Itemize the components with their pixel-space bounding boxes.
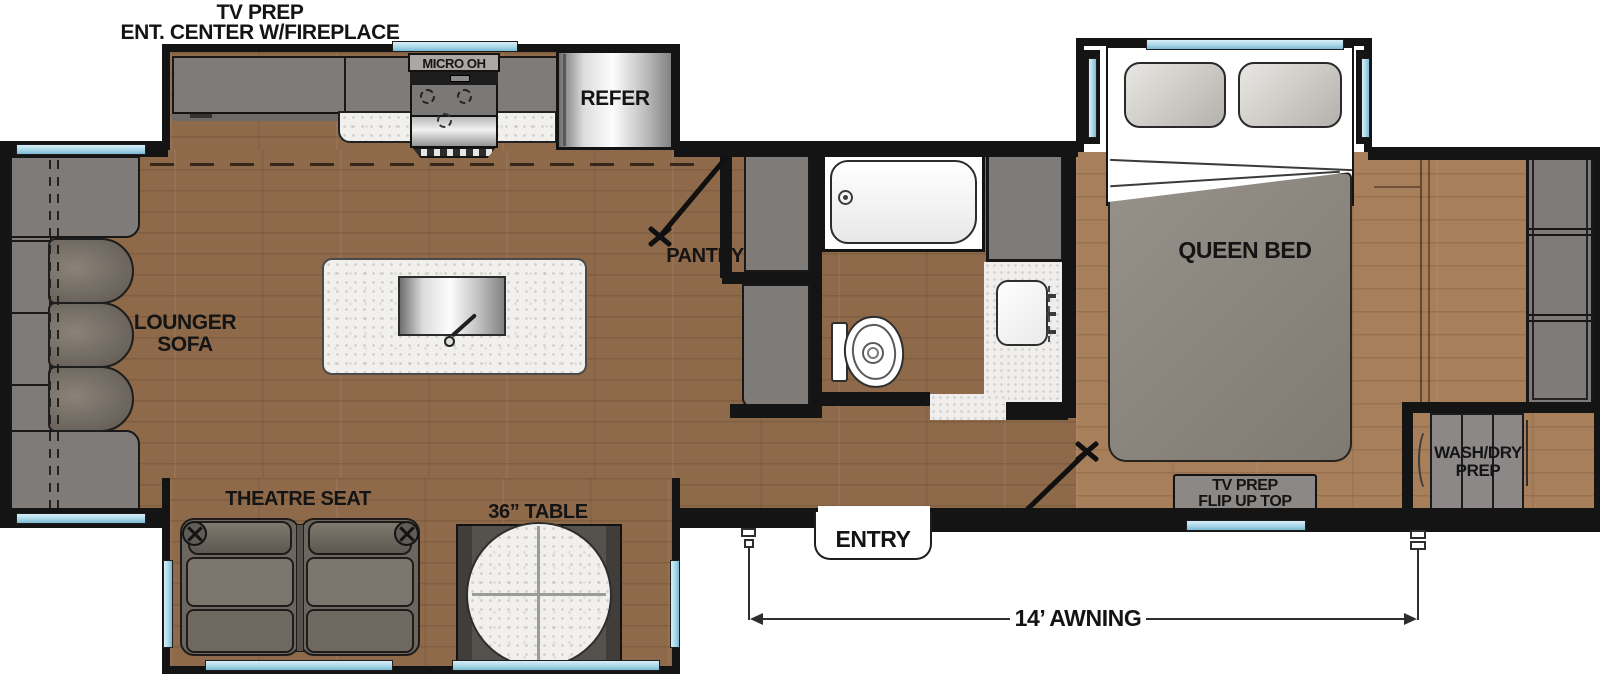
bath-door-threshold-tile (930, 394, 1008, 420)
linen-cabinet (986, 152, 1064, 262)
living-slide-window-bottom-left (205, 660, 393, 671)
living-slide-window-bottom-right (452, 660, 660, 671)
entertainment-center-cabinet (172, 56, 558, 114)
bed-slide-window-top (1146, 39, 1344, 50)
burner-icon (457, 89, 472, 104)
rear-window-top (16, 144, 146, 155)
range-handle (450, 75, 470, 82)
entry-label: ENTRY (814, 527, 932, 551)
awning-bracket-right2 (1410, 541, 1426, 550)
vanity-sink (996, 280, 1048, 346)
bathroom-wall-bottom-right (1006, 402, 1068, 420)
front-platform-seam3 (1374, 186, 1420, 188)
awning-extent-line-left (748, 548, 750, 620)
wall-right (1594, 147, 1600, 532)
sofa-back-seam (12, 312, 50, 314)
awning-extent-line-right (1417, 550, 1419, 620)
vanity-faucet-tick (1046, 312, 1056, 316)
wall-left (0, 141, 10, 528)
kitchen-slide-window (392, 41, 518, 52)
sofa-cushion (48, 366, 134, 432)
queen-bed-label: QUEEN BED (1150, 238, 1340, 262)
bed-pillow (1238, 62, 1342, 128)
wall-top-mid (674, 141, 1078, 157)
front-platform-seam (1420, 158, 1422, 404)
sofa-armrest-bottom (10, 430, 140, 510)
island-sink (398, 276, 506, 336)
microwave-label: MICRO OH (408, 57, 500, 71)
cabinet-handle (190, 114, 212, 118)
oven-vent (412, 147, 496, 158)
wall-top-right (1368, 147, 1600, 160)
awning-dimension-line-left (760, 618, 1010, 620)
wardrobe-shelf (1529, 228, 1591, 230)
tv-prep-label-line2: FLIP UP TOP (1173, 494, 1317, 511)
living-slide-window-right (670, 560, 680, 648)
sofa-fold-dashline (57, 160, 59, 508)
wall-bottom-mid (674, 508, 818, 528)
bathtub-basin (830, 160, 977, 244)
sofa-cushion (48, 238, 134, 304)
lounger-sofa-label-line1: LOUNGER (125, 312, 245, 334)
bathroom-wall-left (810, 150, 822, 408)
bathroom-wall-right (1062, 150, 1076, 418)
burner-icon (437, 113, 452, 128)
wardrobe-inner-frame (1532, 158, 1588, 400)
pantry-label: PANTRY (650, 246, 760, 267)
island-faucet-base (444, 336, 455, 347)
awning-bracket-left2 (744, 539, 754, 548)
rv-floorplan: MICRO OH REFER QUEEN BED LOUNGER (0, 0, 1600, 679)
table-label: 36” TABLE (458, 502, 618, 523)
awning-bracket-left (741, 528, 756, 537)
cabinet-divider (344, 58, 346, 112)
bed-pillow (1124, 62, 1226, 128)
awning-label: 14’ AWNING (1008, 606, 1148, 630)
dinette-table-leaf-line-h (472, 593, 606, 596)
pantry-cabinet-lower (742, 284, 810, 408)
cupholder-icon (182, 521, 207, 546)
living-slide-window-left (163, 560, 173, 648)
sofa-back-seam (12, 240, 50, 242)
sofa-fold-dashline (49, 160, 51, 508)
bed-slide-window-left (1088, 58, 1097, 138)
sofa-cushion (48, 302, 134, 368)
sofa-armrest-top (10, 156, 140, 238)
bathroom-wall-bottom-left (822, 392, 930, 406)
wardrobe-shelf (1529, 234, 1591, 236)
washdry-label-line1: WASH/DRY (1408, 444, 1548, 462)
lounger-sofa-label-line2: SOFA (125, 334, 245, 356)
washdry-label-line2: PREP (1408, 462, 1548, 480)
awning-dimension-line-right (1146, 618, 1408, 620)
theatre-seat-right-back (306, 557, 414, 607)
vanity-faucet-tick (1046, 294, 1056, 298)
awning-arrow-right-icon (1404, 613, 1417, 625)
wardrobe-shelf (1529, 320, 1591, 322)
bed-slide-window-right (1361, 58, 1370, 138)
washdry-wall-top (1402, 402, 1594, 413)
toilet-flush-inner (867, 347, 879, 359)
oven-door (410, 115, 498, 148)
theatre-seat-left-foot (186, 609, 294, 653)
wardrobe-shelf (1529, 314, 1591, 316)
ent-center-label-line2: ENT. CENTER W/FIREPLACE (110, 22, 410, 44)
theatre-seat-divider (296, 524, 304, 652)
queen-bed-blanket (1108, 172, 1352, 462)
bathtub-drain-dot (843, 195, 848, 200)
vanity-faucet-tick (1046, 330, 1056, 334)
pantry-wall-mid (722, 272, 812, 284)
rear-window-bottom (16, 513, 146, 524)
tv-prep-window (1186, 520, 1306, 531)
refrigerator-label: REFER (560, 88, 670, 110)
theatre-seat-label: THEATRE SEAT (208, 489, 388, 510)
pantry-wall-bottom (730, 404, 822, 418)
sofa-back-seam (12, 384, 50, 386)
cupholder-icon (394, 521, 419, 546)
front-platform-seam2 (1428, 158, 1430, 404)
theatre-seat-right-foot (306, 609, 414, 653)
awning-bracket-right (1410, 530, 1426, 539)
theatre-seat-left-back (186, 557, 294, 607)
burner-icon (420, 89, 435, 104)
